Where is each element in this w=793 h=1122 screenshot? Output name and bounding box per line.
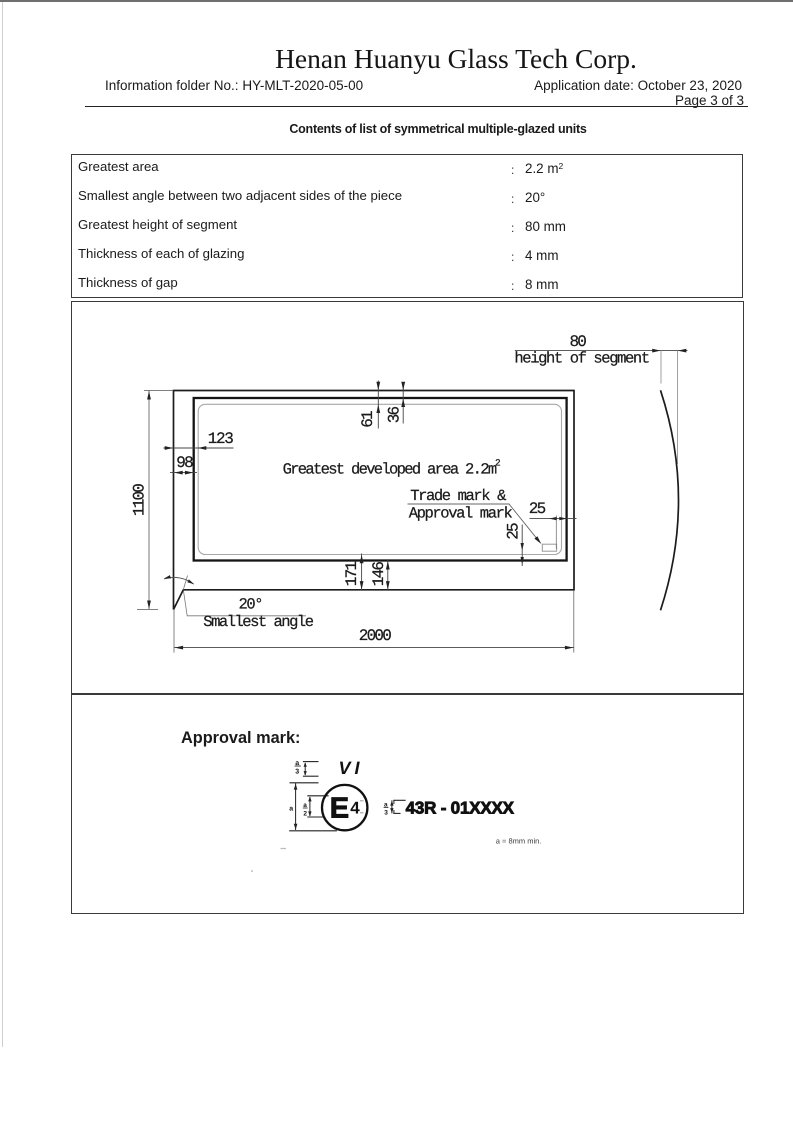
svg-text:VI: VI	[339, 758, 364, 778]
svg-text:25: 25	[529, 500, 546, 518]
svg-text:E: E	[330, 792, 349, 824]
svg-text:2: 2	[495, 458, 501, 469]
svg-text:80: 80	[570, 333, 587, 351]
svg-text:2: 2	[303, 811, 307, 818]
svg-text:43R - 01XXXX: 43R - 01XXXX	[406, 799, 515, 818]
svg-text:36: 36	[385, 407, 403, 424]
svg-text:a = 8mm min.: a = 8mm min.	[496, 837, 542, 846]
svg-text:61: 61	[359, 411, 377, 428]
svg-text:98: 98	[176, 454, 193, 472]
svg-text:2000: 2000	[359, 627, 391, 645]
svg-text:Smallest angle: Smallest angle	[203, 613, 313, 631]
svg-text:3: 3	[384, 810, 388, 817]
svg-text:height of segment: height of segment	[514, 350, 648, 368]
svg-text:3: 3	[295, 769, 299, 776]
svg-text:20°: 20°	[239, 596, 263, 614]
svg-text:Trade mark &: Trade mark &	[410, 487, 506, 505]
svg-text:25: 25	[505, 523, 523, 540]
svg-text:Greatest developed area 2.2m: Greatest developed area 2.2m	[283, 461, 497, 479]
svg-text:171: 171	[343, 562, 361, 587]
svg-text:123: 123	[208, 430, 233, 448]
svg-text:1100: 1100	[131, 484, 149, 516]
svg-text:4: 4	[350, 798, 360, 817]
svg-text:a: a	[289, 806, 293, 813]
svg-text:146: 146	[370, 562, 388, 587]
svg-text:Approval mark: Approval mark	[409, 504, 513, 522]
